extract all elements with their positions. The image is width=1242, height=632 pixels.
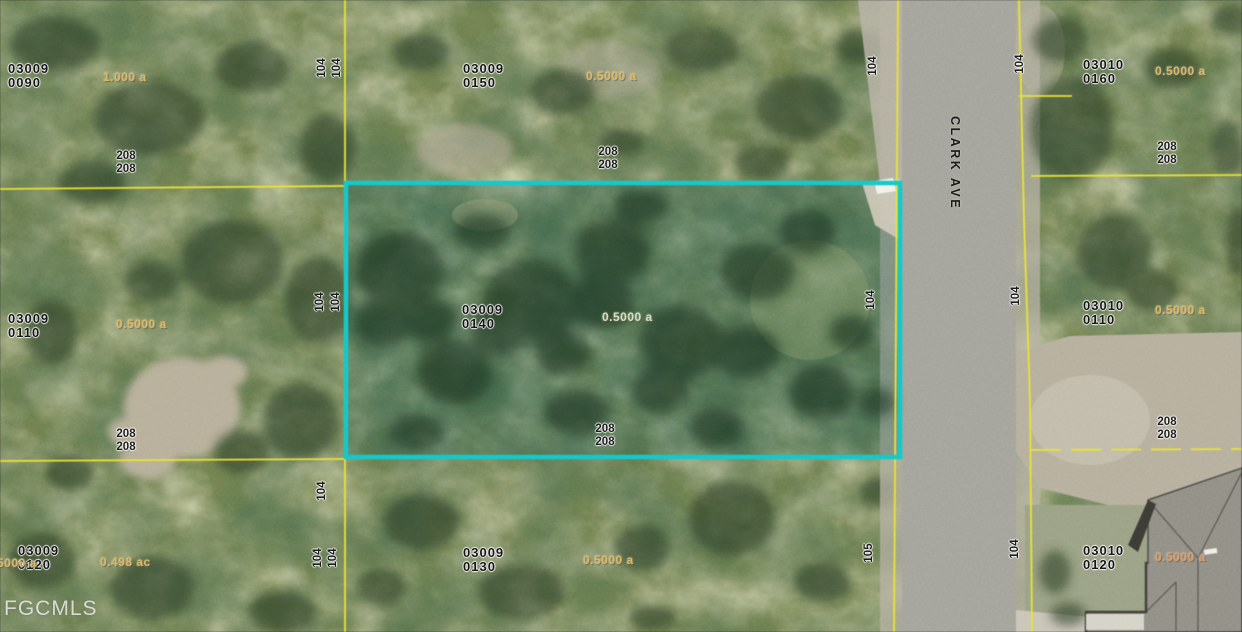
dim-value: 208 — [1147, 416, 1187, 429]
aerial-parcel-map: 03009 0090 03009 0150 03010 0160 03009 0… — [0, 0, 1242, 632]
mls-watermark: FGCMLS — [4, 597, 98, 621]
parcel-id-line: 03009 — [8, 62, 49, 76]
acreage-bottom-right: 0.5000 a — [1155, 550, 1206, 564]
dim-width: 104 — [1009, 539, 1021, 558]
dim-value: 208 — [1147, 154, 1187, 167]
parcel-id-line: 0130 — [463, 560, 504, 574]
parcel-id-line: 03009 — [462, 303, 503, 317]
parcel-id-top-left: 03009 0090 — [8, 62, 49, 90]
dim-value: 208 — [1147, 429, 1187, 442]
dim-depth-mid-right: 208 208 — [1147, 416, 1187, 442]
parcel-id-line: 03010 — [1083, 58, 1124, 72]
dim-value: 208 — [1147, 141, 1187, 154]
acreage-edge-partial: 0.5000 a — [0, 556, 37, 570]
parcel-id-mid-left: 03009 0110 — [8, 312, 49, 340]
parcel-id-line: 0120 — [1083, 558, 1124, 572]
acreage-bottom-left: 0.498 ac — [100, 555, 151, 569]
dim-value: 208 — [106, 441, 146, 454]
dim-value: 208 — [585, 423, 625, 436]
dim-depth-bottom-left: 208 208 — [106, 428, 146, 454]
dim-width-alt: 105 — [863, 543, 875, 562]
parcel-id-top-right: 03010 0160 — [1083, 58, 1124, 86]
dim-width: 104 — [330, 292, 342, 311]
dim-width: 104 — [867, 56, 879, 75]
dim-value: 208 — [588, 146, 628, 159]
dim-width: 104 — [1014, 54, 1026, 73]
parcel-id-line: 0160 — [1083, 72, 1124, 86]
dim-width: 104 — [316, 58, 328, 77]
parcel-id-bottom-middle: 03009 0130 — [463, 546, 504, 574]
dim-width: 104 — [312, 548, 324, 567]
acreage-top-right: 0.5000 a — [1155, 64, 1206, 78]
parcel-id-line: 0090 — [8, 76, 49, 90]
acreage-top-middle: 0.5000 a — [586, 69, 637, 83]
parcel-id-line: 03009 — [8, 312, 49, 326]
dim-width: 104 — [865, 290, 877, 309]
dim-depth-top-left: 208 208 — [106, 150, 146, 176]
parcel-id-line: 0110 — [1083, 313, 1124, 327]
dim-value: 208 — [106, 150, 146, 163]
dim-width: 104 — [314, 292, 326, 311]
parcel-id-line: 03010 — [1083, 299, 1124, 313]
parcel-id-line: 03010 — [1083, 544, 1124, 558]
parcel-id-mid-right: 03010 0110 — [1083, 299, 1124, 327]
acreage-bottom-middle: 0.5000 a — [583, 553, 634, 567]
dim-value: 208 — [106, 428, 146, 441]
dim-value: 208 — [585, 436, 625, 449]
map-labels: 03009 0090 03009 0150 03010 0160 03009 0… — [0, 0, 1242, 632]
parcel-id-line: 0110 — [8, 326, 49, 340]
parcel-id-line: 0150 — [463, 76, 504, 90]
acreage-mid-right: 0.5000 a — [1155, 303, 1206, 317]
dim-value: 208 — [106, 163, 146, 176]
dim-value: 208 — [588, 159, 628, 172]
parcel-id-line: 03009 — [463, 546, 504, 560]
dim-depth-top-middle: 208 208 — [588, 146, 628, 172]
dim-width: 104 — [327, 548, 339, 567]
dim-width: 104 — [331, 58, 343, 77]
parcel-id-top-middle: 03009 0150 — [463, 62, 504, 90]
dim-depth-bottom-middle: 208 208 — [585, 423, 625, 449]
street-name-clark-ave: CLARK AVE — [948, 116, 962, 210]
dim-depth-top-right: 208 208 — [1147, 141, 1187, 167]
acreage-top-left: 1.000 a — [103, 70, 147, 84]
dim-width: 104 — [316, 481, 328, 500]
parcel-id-line: 03009 — [463, 62, 504, 76]
acreage-subject: 0.5000 a — [602, 310, 653, 324]
dim-width: 104 — [1010, 286, 1022, 305]
parcel-id-bottom-right: 03010 0120 — [1083, 544, 1124, 572]
acreage-mid-left: 0.5000 a — [116, 317, 167, 331]
parcel-id-subject: 03009 0140 — [462, 303, 503, 331]
parcel-id-line: 0140 — [462, 317, 503, 331]
